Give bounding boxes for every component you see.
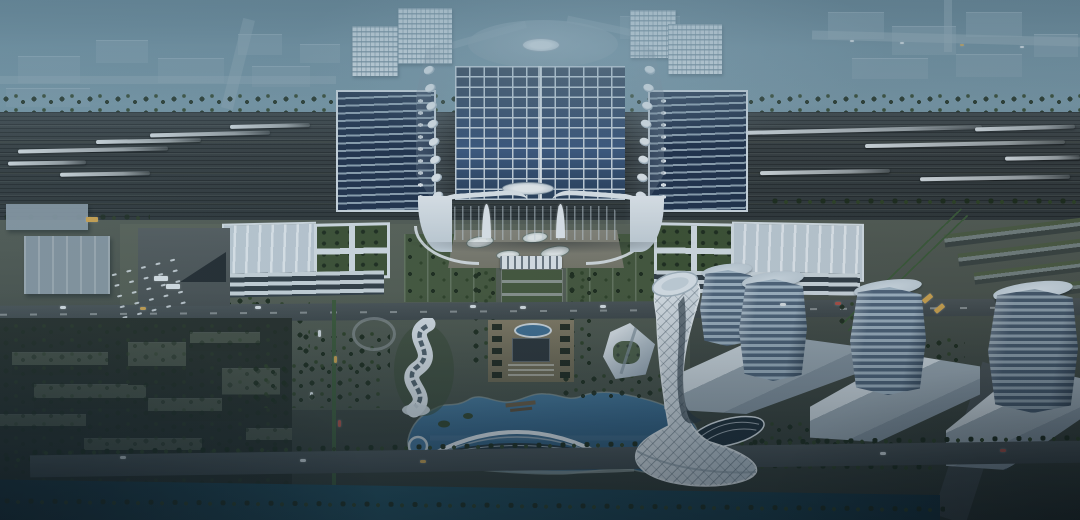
aerial-rendering: [0, 0, 1080, 520]
blue-color-cast: [0, 0, 1080, 520]
